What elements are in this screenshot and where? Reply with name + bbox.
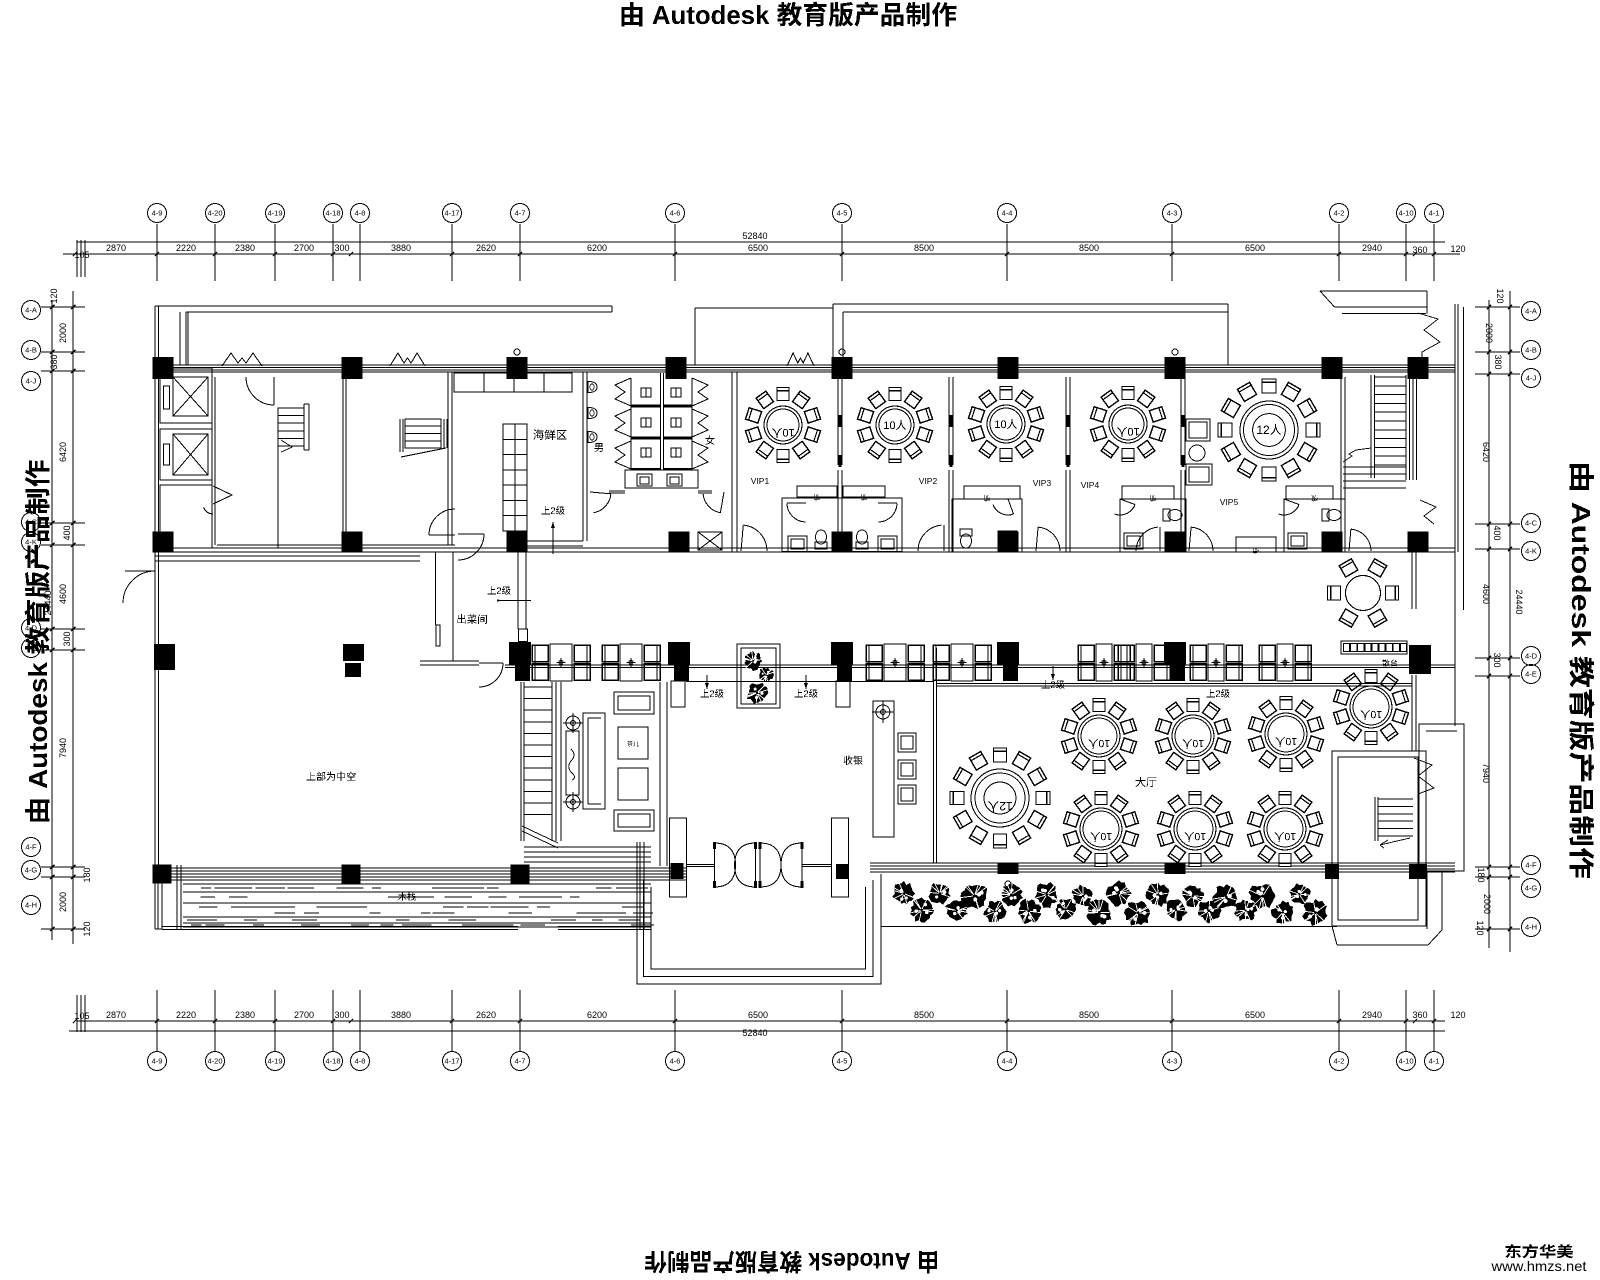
svg-text:VIP4: VIP4 — [1081, 480, 1100, 490]
svg-text:6500: 6500 — [1245, 1010, 1265, 1020]
svg-text:120: 120 — [1495, 288, 1505, 303]
svg-text:4-B: 4-B — [1525, 346, 1537, 355]
svg-text:4-1: 4-1 — [1429, 1057, 1440, 1066]
svg-text:2700: 2700 — [294, 1010, 314, 1020]
svg-text:4600: 4600 — [1481, 584, 1491, 604]
svg-text:4-18: 4-18 — [325, 209, 340, 218]
svg-text:180: 180 — [82, 867, 92, 882]
svg-text:8500: 8500 — [1079, 243, 1099, 253]
svg-text:4-G: 4-G — [25, 866, 38, 875]
svg-text:4-G: 4-G — [1525, 884, 1538, 893]
svg-text:2000: 2000 — [1484, 323, 1494, 343]
svg-text:2940: 2940 — [1362, 1010, 1382, 1020]
svg-text:VIP1: VIP1 — [751, 476, 770, 486]
svg-text:4-20: 4-20 — [207, 209, 222, 218]
svg-text:4-4: 4-4 — [1002, 1057, 1013, 1066]
svg-text:4-1: 4-1 — [1429, 209, 1440, 218]
svg-text:2620: 2620 — [476, 243, 496, 253]
svg-text:8500: 8500 — [1079, 1010, 1099, 1020]
svg-text:300: 300 — [62, 631, 72, 646]
svg-text:VIP5: VIP5 — [1220, 497, 1239, 507]
svg-text:4-19: 4-19 — [267, 1057, 282, 1066]
svg-text:2700: 2700 — [294, 243, 314, 253]
svg-text:4-6: 4-6 — [670, 1057, 681, 1066]
svg-text:300: 300 — [1492, 652, 1502, 667]
svg-text:52840: 52840 — [742, 231, 767, 241]
svg-text:380: 380 — [49, 354, 59, 369]
svg-text:3880: 3880 — [391, 243, 411, 253]
svg-text:180: 180 — [1476, 867, 1486, 882]
svg-text:2380: 2380 — [235, 243, 255, 253]
svg-text:VIP2: VIP2 — [919, 476, 938, 486]
svg-text:7940: 7940 — [1481, 763, 1491, 783]
svg-text:4-2: 4-2 — [1334, 209, 1345, 218]
svg-text:6500: 6500 — [748, 1010, 768, 1020]
svg-text:2870: 2870 — [106, 243, 126, 253]
svg-text:2000: 2000 — [58, 323, 68, 343]
svg-text:4-A: 4-A — [1525, 307, 1537, 316]
svg-text:4-F: 4-F — [1525, 861, 1537, 870]
svg-text:4-C: 4-C — [1525, 519, 1538, 528]
svg-text:4-B: 4-B — [25, 346, 37, 355]
svg-text:120: 120 — [1475, 920, 1485, 935]
svg-text:4-4: 4-4 — [1002, 209, 1013, 218]
svg-text:24440: 24440 — [43, 590, 53, 615]
svg-text:VIP3: VIP3 — [1033, 478, 1052, 488]
svg-text:120: 120 — [1450, 244, 1465, 254]
svg-text:300: 300 — [334, 1010, 349, 1020]
svg-text:4-5: 4-5 — [837, 209, 848, 218]
svg-text:4-19: 4-19 — [267, 209, 282, 218]
svg-text:4-8: 4-8 — [355, 209, 366, 218]
svg-text:4-20: 4-20 — [207, 1057, 222, 1066]
svg-text:6500: 6500 — [1245, 243, 1265, 253]
svg-text:6500: 6500 — [748, 243, 768, 253]
svg-text:4-K: 4-K — [25, 538, 37, 547]
svg-text:4-8: 4-8 — [355, 1057, 366, 1066]
svg-text:7940: 7940 — [58, 738, 68, 758]
svg-text:6420: 6420 — [1481, 442, 1491, 462]
svg-text:2380: 2380 — [235, 1010, 255, 1020]
svg-text:120: 120 — [1450, 1010, 1465, 1020]
svg-text:4-E: 4-E — [1525, 670, 1537, 679]
svg-text:4-9: 4-9 — [152, 209, 163, 218]
svg-text:4-E: 4-E — [25, 644, 37, 653]
svg-text:4-H: 4-H — [25, 901, 37, 910]
svg-text:300: 300 — [334, 243, 349, 253]
svg-text:4-6: 4-6 — [670, 209, 681, 218]
svg-text:6420: 6420 — [58, 442, 68, 462]
svg-text:2220: 2220 — [176, 243, 196, 253]
svg-text:120: 120 — [49, 288, 59, 303]
svg-text:4-J: 4-J — [1526, 374, 1537, 383]
svg-text:4-K: 4-K — [1525, 547, 1537, 556]
svg-text:4-H: 4-H — [1525, 923, 1537, 932]
svg-text:4-10: 4-10 — [1398, 1057, 1413, 1066]
svg-text:6200: 6200 — [587, 1010, 607, 1020]
svg-text:52840: 52840 — [742, 1028, 767, 1038]
svg-text:2000: 2000 — [1482, 894, 1492, 914]
svg-text:4-3: 4-3 — [1167, 209, 1178, 218]
svg-text:4-F: 4-F — [25, 843, 37, 852]
svg-text:4-7: 4-7 — [515, 209, 526, 218]
svg-text:4-3: 4-3 — [1167, 1057, 1178, 1066]
svg-text:4-J: 4-J — [26, 377, 37, 386]
svg-text:380: 380 — [1493, 354, 1503, 369]
svg-text:400: 400 — [1492, 525, 1502, 540]
svg-text:4-18: 4-18 — [325, 1057, 340, 1066]
svg-text:www.hmzs.net: www.hmzs.net — [1490, 1258, 1586, 1274]
svg-text:4-D: 4-D — [1525, 652, 1538, 661]
svg-text:6200: 6200 — [587, 243, 607, 253]
svg-text:8500: 8500 — [914, 1010, 934, 1020]
svg-text:2940: 2940 — [1362, 243, 1382, 253]
svg-text:24440: 24440 — [1514, 589, 1524, 614]
svg-text:4-7: 4-7 — [515, 1057, 526, 1066]
svg-text:2000: 2000 — [58, 892, 68, 912]
svg-text:4-2: 4-2 — [1334, 1057, 1345, 1066]
svg-text:120: 120 — [82, 921, 92, 936]
svg-text:4600: 4600 — [58, 584, 68, 604]
svg-text:4-A: 4-A — [25, 306, 37, 315]
svg-text:4-17: 4-17 — [444, 209, 459, 218]
svg-text:4-9: 4-9 — [152, 1057, 163, 1066]
svg-text:2620: 2620 — [476, 1010, 496, 1020]
svg-text:400: 400 — [62, 525, 72, 540]
svg-text:8500: 8500 — [914, 243, 934, 253]
svg-text:4-17: 4-17 — [444, 1057, 459, 1066]
svg-text:360: 360 — [1412, 1010, 1427, 1020]
svg-text:4-D: 4-D — [25, 624, 38, 633]
svg-text:2870: 2870 — [106, 1010, 126, 1020]
svg-text:3880: 3880 — [391, 1010, 411, 1020]
svg-text:4-C: 4-C — [25, 518, 38, 527]
svg-text:2220: 2220 — [176, 1010, 196, 1020]
svg-text:4-10: 4-10 — [1398, 209, 1413, 218]
svg-text:4-5: 4-5 — [837, 1057, 848, 1066]
